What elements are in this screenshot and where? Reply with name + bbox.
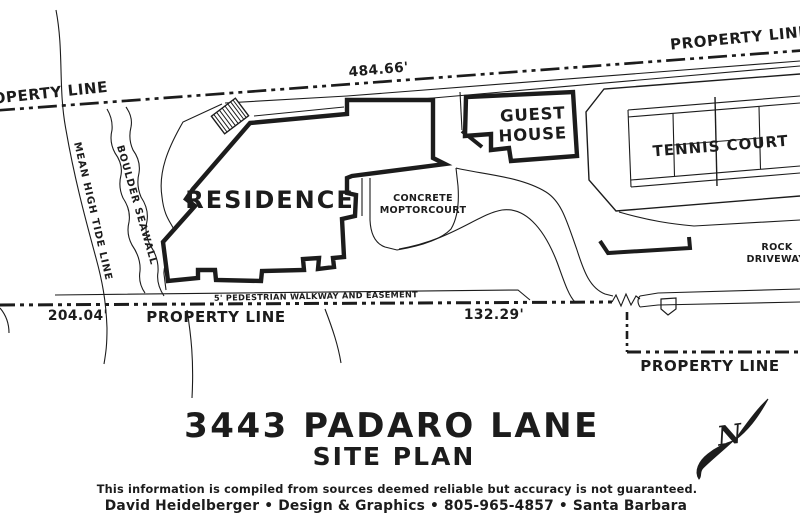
plan-subtitle: SITE PLAN [313, 442, 476, 471]
site-plan-page: PROPERTY LINE 484.66' PROPERTY LINE MEAN… [0, 0, 800, 530]
gate-marker [661, 298, 676, 315]
tennis-court-label: TENNIS COURT [652, 132, 789, 161]
dimension-484: 484.66' [348, 59, 409, 80]
beach-path-line [325, 309, 341, 363]
property-line-top-right-label: PROPERTY LINE [669, 22, 800, 53]
dimension-132: 132.29' [464, 307, 524, 323]
credit: David Heidelberger • Design & Graphics •… [105, 498, 687, 514]
site-plan-drawing: PROPERTY LINE 484.66' PROPERTY LINE MEAN… [0, 0, 800, 530]
motorcourt-label-line1: CONCRETE [393, 193, 453, 204]
plan-title: 3443 PADARO LANE [184, 406, 600, 446]
dimension-204: 204.04' [48, 308, 108, 324]
motorcourt-label-line2: MOPTORCOURT [380, 205, 467, 216]
shore-curve-left [0, 308, 9, 333]
property-line-bottom-label: PROPERTY LINE [146, 308, 285, 326]
property-line-bottom-right-label: PROPERTY LINE [640, 357, 779, 375]
guest-house-label-line2: HOUSE [498, 123, 567, 146]
driveway-curve-lower [399, 210, 575, 302]
north-arrow: N [697, 399, 768, 479]
disclaimer: This information is compiled from source… [97, 483, 697, 496]
walkway-easement-label: 5' PEDESTRIAN WALKWAY AND EASEMENT [214, 289, 418, 303]
gate-break [612, 294, 640, 306]
property-line-bottom [0, 302, 612, 305]
mean-high-tide-label: MEAN HIGH TIDE LINE [71, 141, 114, 282]
courtyard-fence-line [460, 92, 462, 130]
rock-driveway-label-line1: ROCK [761, 242, 792, 253]
residence-label: RESIDENCE [185, 186, 355, 214]
road-lines [638, 289, 800, 307]
north-label: N [714, 418, 745, 452]
rock-driveway-label-line2: DRIVEWAY [747, 254, 800, 265]
retaining-wall [600, 237, 690, 253]
rock-driveway-boundary [619, 212, 800, 226]
boulder-seawall-label: BOULDER SEAWALL [114, 144, 159, 267]
driveway-curve-upper [456, 168, 613, 296]
guest-house-label-line1: GUEST [500, 103, 566, 125]
